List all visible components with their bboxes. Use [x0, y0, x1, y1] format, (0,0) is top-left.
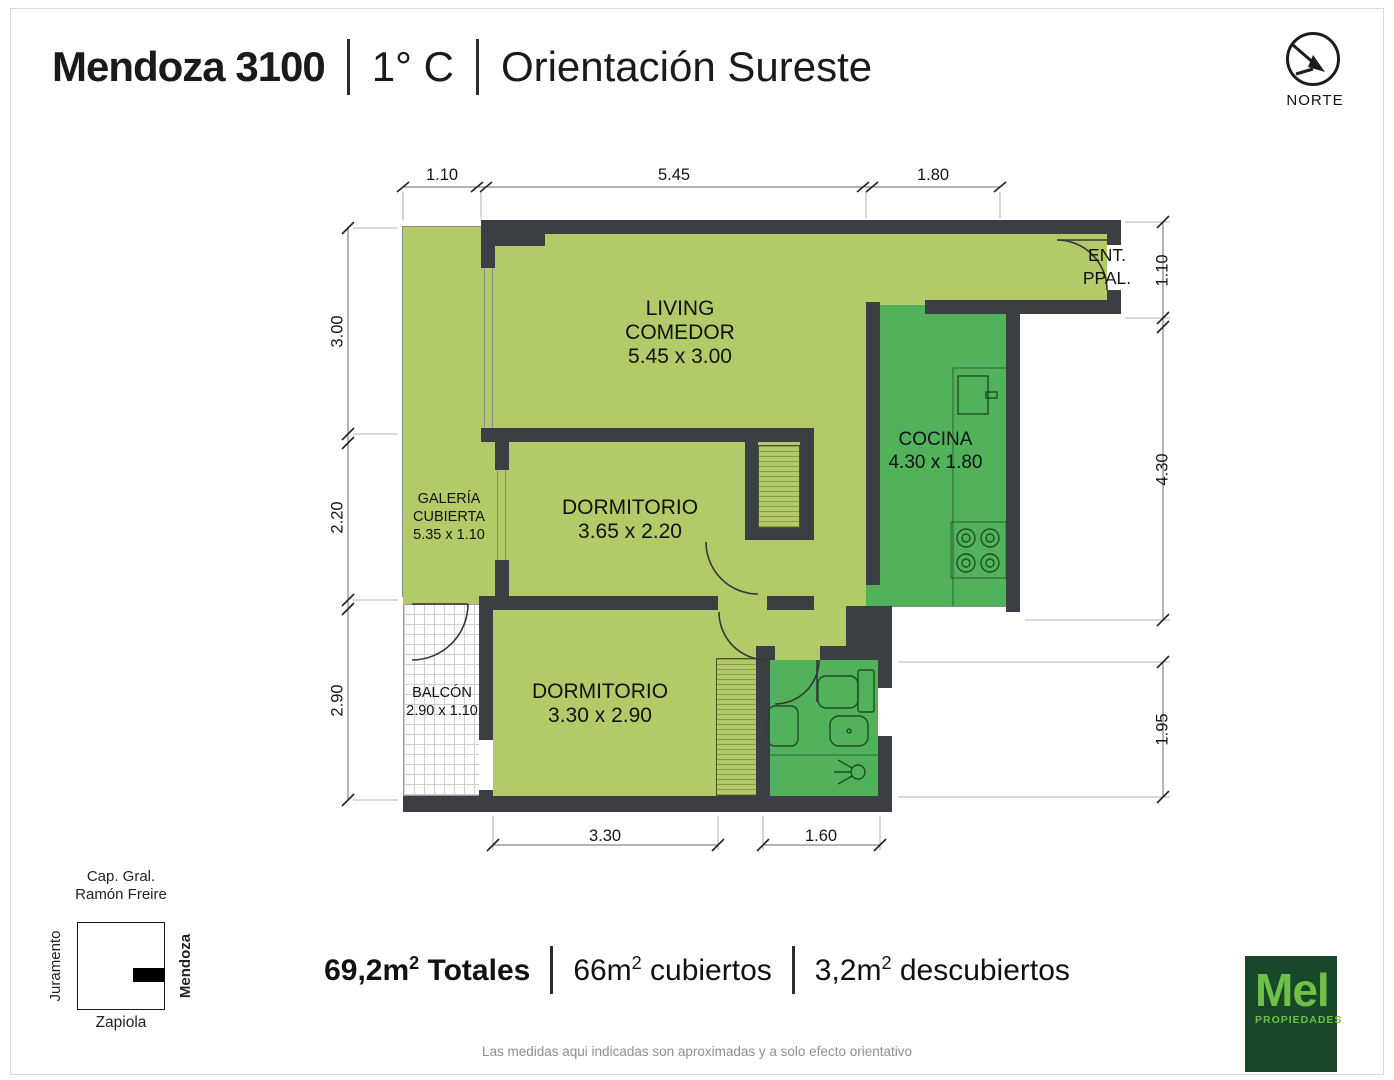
wall: [820, 646, 892, 660]
dorm2-window: [479, 740, 493, 790]
wall: [878, 660, 892, 688]
title-orientation: Orientación Sureste: [501, 43, 872, 91]
dim-left-3: 2.90: [329, 671, 348, 731]
label-galeria: GALERÍA CUBIERTA 5.35 x 1.10: [399, 490, 499, 544]
map-street-south: Zapiola: [41, 1014, 201, 1032]
dim-right-2: 4.30: [1154, 440, 1173, 500]
wall: [756, 646, 775, 660]
mel-propiedades-logo: Mel PROPIEDADES: [1245, 956, 1337, 1072]
wall: [495, 442, 509, 470]
label-cocina: COCINA 4.30 x 1.80: [858, 428, 1013, 474]
dim-left-2: 2.20: [329, 488, 348, 548]
wall: [745, 528, 814, 540]
dim-top-3: 1.80: [903, 166, 963, 185]
room-bathroom: [770, 660, 878, 796]
wall: [878, 736, 892, 796]
uncovered-area: 3,2m2 descubiertos: [815, 953, 1070, 988]
summary-separator: [550, 946, 553, 994]
title-separator: [476, 39, 479, 95]
title-address: Mendoza 3100: [52, 43, 325, 91]
label-dormitorio-1: DORMITORIO 3.65 x 2.20: [510, 496, 750, 544]
title-separator: [347, 39, 350, 95]
dim-right-1: 1.10: [1154, 241, 1173, 301]
dim-top-2: 5.45: [644, 166, 704, 185]
wall: [925, 300, 1121, 314]
area-summary: 69,2m2 Totales 66m2 cubiertos 3,2m2 desc…: [120, 946, 1274, 994]
label-entrada-principal: ENT. PPAL.: [1068, 244, 1146, 290]
wall: [767, 596, 814, 610]
living-window-line: [492, 268, 493, 428]
closet-dormitorio-2: [716, 658, 758, 796]
cocina-bottom-line: [874, 606, 1020, 607]
north-arrow-icon: [1286, 32, 1340, 86]
disclaimer-text: Las medidas aqui indicadas son aproximad…: [0, 1044, 1394, 1059]
wall: [756, 660, 770, 796]
logo-name: Mel: [1255, 968, 1337, 1012]
dim-left-1: 3.00: [329, 302, 348, 362]
dim-bottom-1: 3.30: [575, 827, 635, 846]
wall: [481, 428, 814, 442]
dim-right-3: 1.95: [1154, 700, 1173, 760]
dim-top-1: 1.10: [412, 166, 472, 185]
closet-dormitorio-1: [758, 445, 800, 528]
summary-separator: [792, 946, 795, 994]
covered-area: 66m2 cubiertos: [573, 953, 771, 988]
label-balcon: BALCÓN 2.90 x 1.10: [392, 684, 492, 720]
wall: [479, 596, 718, 610]
total-area: 69,2m2 Totales: [324, 953, 530, 988]
galeria-edge-line: [402, 226, 481, 227]
label-dormitorio-2: DORMITORIO 3.30 x 2.90: [480, 680, 720, 728]
wall: [403, 796, 892, 812]
living-window-line: [484, 268, 485, 428]
wall: [481, 220, 1121, 234]
title-unit: 1° C: [372, 43, 454, 91]
page-title: Mendoza 3100 1° C Orientación Sureste: [52, 36, 872, 98]
dim-bottom-2: 1.60: [791, 827, 851, 846]
north-label: NORTE: [1270, 92, 1360, 109]
label-living: LIVING COMEDOR 5.45 x 3.00: [550, 297, 810, 369]
floorplan-page: Mendoza 3100 1° C Orientación Sureste NO…: [0, 0, 1394, 1080]
dorm1-window-line: [505, 470, 506, 560]
bathroom-window: [878, 688, 892, 736]
logo-subtitle: PROPIEDADES: [1255, 1014, 1337, 1026]
cocina-doorway: [866, 585, 880, 606]
wall: [495, 560, 509, 596]
wall: [481, 234, 495, 268]
wall: [800, 442, 814, 540]
